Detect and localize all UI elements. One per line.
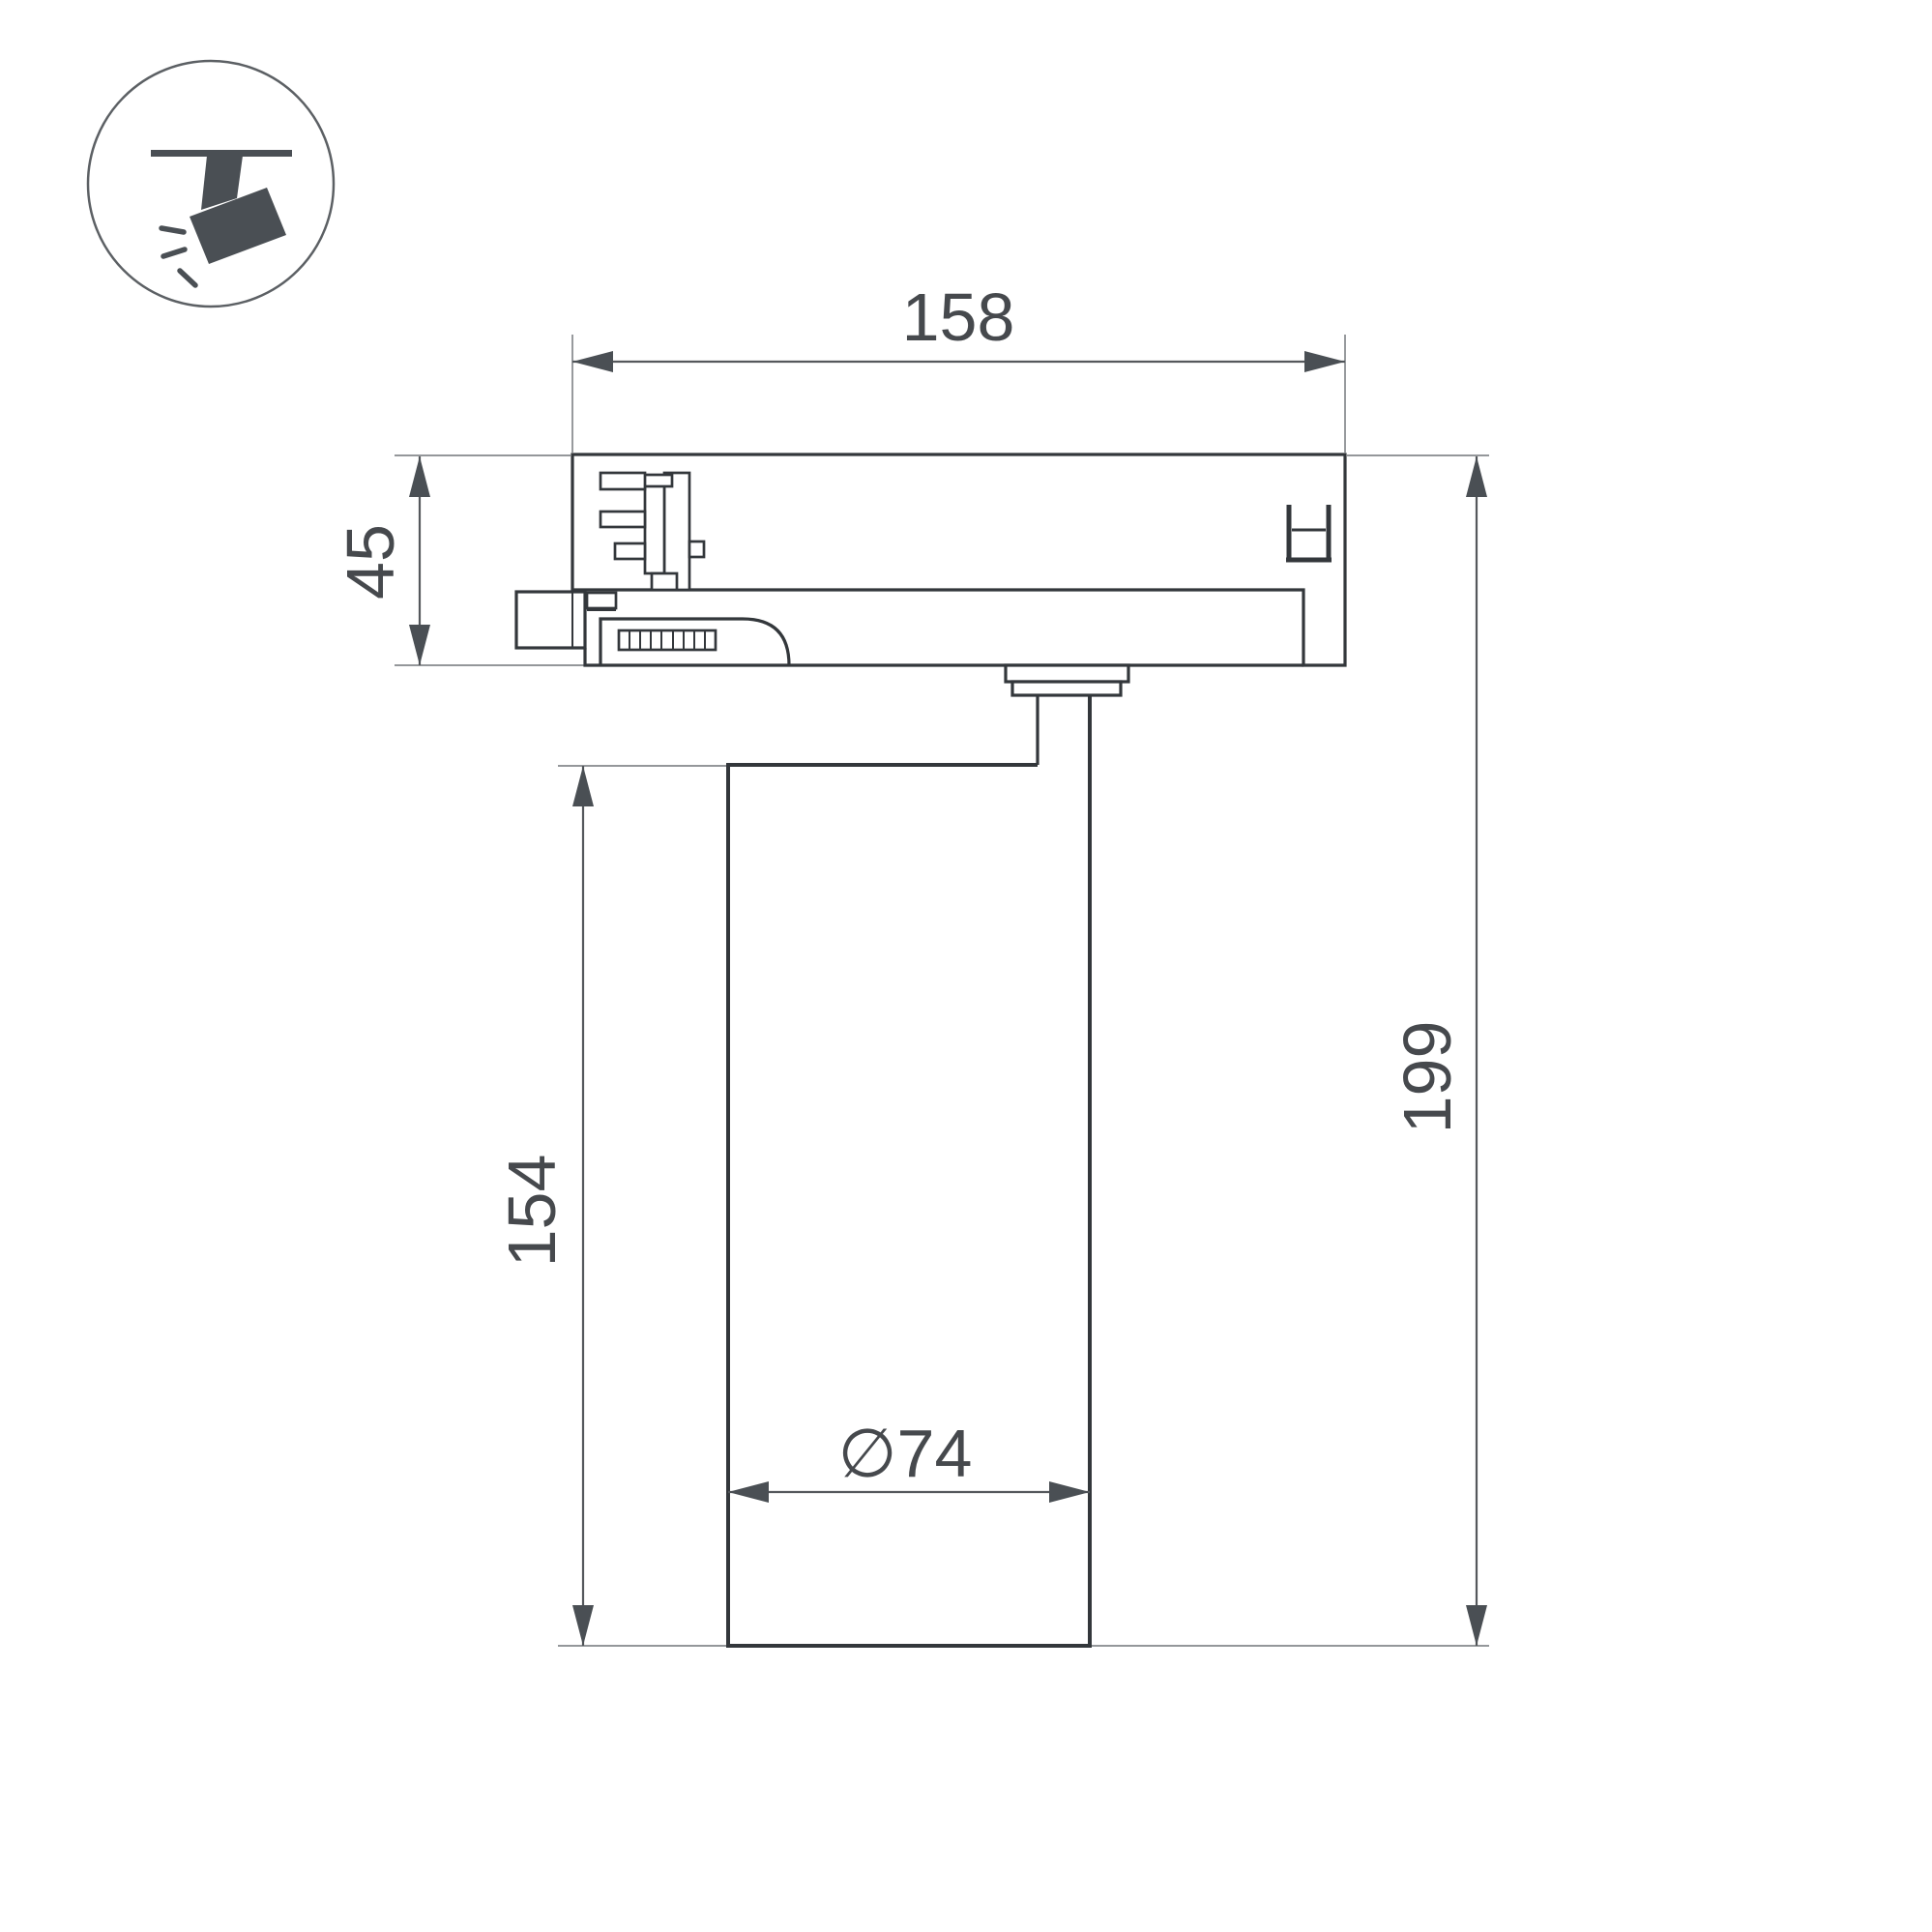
dim-label-158: 158 (902, 279, 1015, 355)
arrowhead-bottom (572, 1605, 594, 1646)
locking-lever (600, 619, 789, 665)
contact-pin-bottom (615, 543, 645, 559)
arrowhead-top (572, 766, 594, 806)
pedestal-flange-lower (1012, 682, 1121, 695)
dimension-overall-height: 199 (1390, 456, 1487, 1646)
latch-box (516, 592, 585, 648)
track-adapter (516, 454, 1345, 665)
contact-pin-top (600, 473, 645, 489)
connector-foot (652, 573, 677, 590)
arrowhead-top (409, 456, 430, 497)
connector-side-tab (689, 542, 704, 557)
track-spotlight-icon (88, 61, 334, 307)
arrowhead-bottom (1466, 1605, 1487, 1646)
dim-label-74: ∅74 (838, 1416, 973, 1491)
technical-drawing: 158 45 154 199 ∅74 (0, 0, 1932, 1932)
dim-label-154: 154 (494, 1155, 570, 1268)
dimension-adapter-height: 45 (333, 456, 430, 665)
arrowhead-bottom (409, 625, 430, 665)
mount-pedestal (1006, 665, 1128, 765)
arrowhead-top (1466, 456, 1487, 497)
dim-label-45: 45 (333, 524, 408, 600)
arrowhead-right (1304, 351, 1345, 372)
dimension-body-height: 154 (494, 766, 594, 1646)
contact-pin-middle (600, 512, 645, 527)
arrowhead-left (572, 351, 613, 372)
cylinder-face (730, 767, 1088, 1644)
latch-inner-box (587, 593, 616, 608)
dimension-adapter-width: 158 (572, 279, 1345, 372)
connector-mast (645, 485, 664, 573)
drawing-canvas: 158 45 154 199 ∅74 (0, 0, 1932, 1932)
icon-track-bar (151, 150, 292, 157)
lever-grip (619, 630, 716, 650)
lamp-body-cylinder (726, 695, 1092, 1646)
pedestal-flange-upper (1006, 665, 1128, 682)
dim-label-199: 199 (1390, 1021, 1465, 1134)
